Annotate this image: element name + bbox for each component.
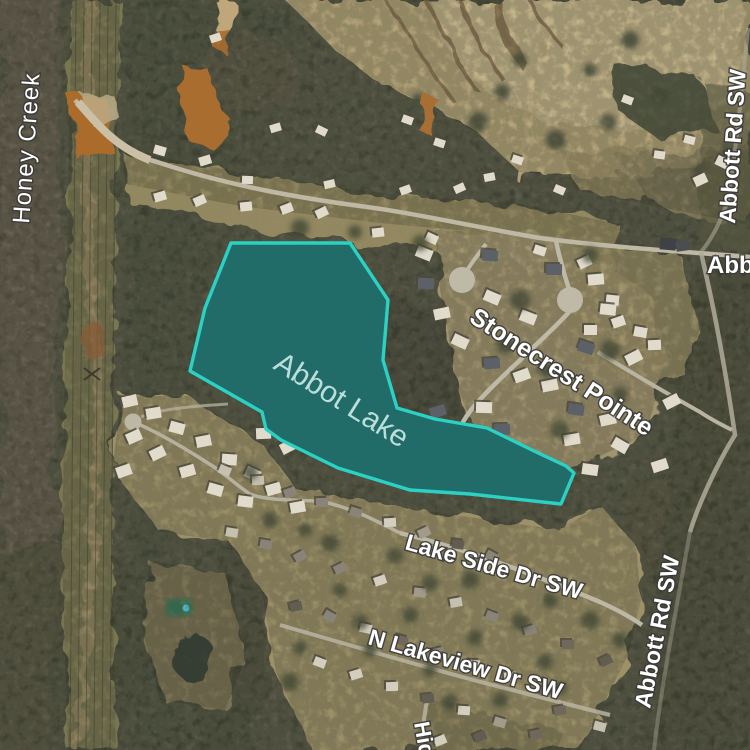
svg-text:Hid: Hid: [409, 720, 440, 750]
svg-text:Abb: Abb: [707, 252, 750, 279]
